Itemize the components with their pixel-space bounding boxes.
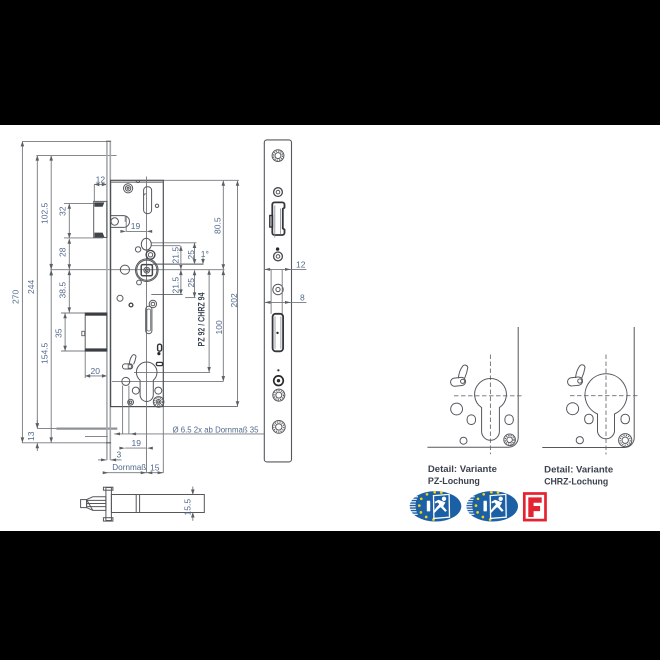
svg-text:154.5: 154.5 [40, 342, 50, 364]
svg-text:12: 12 [96, 175, 106, 185]
svg-text:13: 13 [26, 431, 36, 441]
svg-text:244: 244 [26, 280, 36, 294]
svg-text:28: 28 [58, 247, 68, 257]
svg-text:270: 270 [11, 290, 21, 304]
svg-text:19: 19 [132, 438, 142, 448]
svg-text:3: 3 [117, 450, 122, 460]
svg-text:32: 32 [58, 206, 68, 216]
svg-text:15: 15 [150, 462, 160, 472]
svg-text:Ø 6.5 2x ab Dornmaß 35: Ø 6.5 2x ab Dornmaß 35 [173, 425, 259, 435]
svg-text:202: 202 [229, 293, 239, 307]
svg-text:102.5: 102.5 [40, 202, 50, 224]
svg-text:8: 8 [300, 293, 305, 303]
svg-text:38.5: 38.5 [58, 282, 68, 299]
svg-text:35: 35 [54, 328, 64, 338]
svg-text:1°: 1° [201, 249, 209, 259]
svg-text:PZ-Lochung: PZ-Lochung [428, 476, 480, 486]
svg-text:100: 100 [214, 320, 224, 334]
svg-text:Dornmaß: Dornmaß [112, 462, 146, 472]
svg-text:21.5: 21.5 [170, 277, 180, 294]
svg-text:PZ 92 / CHRZ 94: PZ 92 / CHRZ 94 [197, 293, 207, 347]
svg-text:Detail: Variante: Detail: Variante [544, 464, 613, 474]
svg-text:25: 25 [186, 250, 196, 260]
svg-text:21.5: 21.5 [170, 247, 180, 264]
svg-text:20: 20 [91, 366, 101, 376]
svg-text:12: 12 [296, 260, 306, 270]
svg-text:CHRZ-Lochung: CHRZ-Lochung [544, 476, 608, 486]
svg-text:15.5: 15.5 [183, 499, 193, 516]
svg-text:19: 19 [131, 221, 141, 231]
svg-text:25: 25 [186, 278, 196, 288]
svg-text:Detail: Variante: Detail: Variante [428, 464, 497, 474]
svg-text:80.5: 80.5 [213, 217, 223, 234]
